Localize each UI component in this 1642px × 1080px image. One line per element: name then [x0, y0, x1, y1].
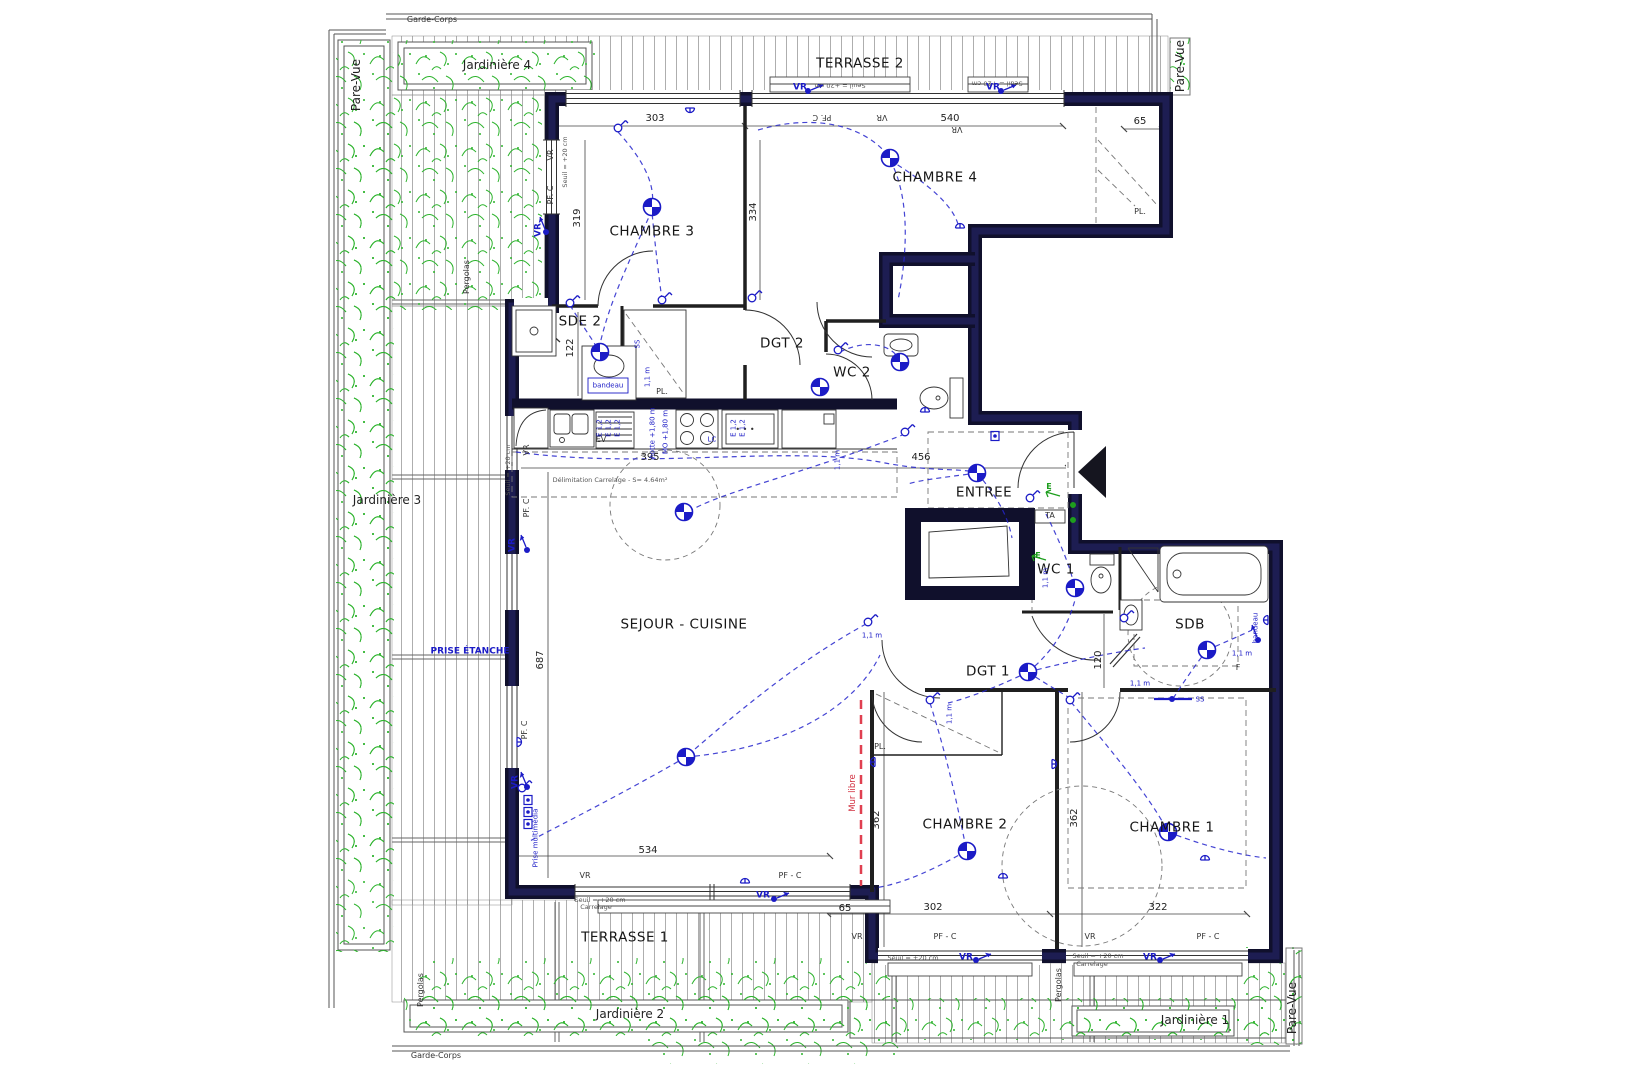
electrical-symbols	[517, 84, 1268, 963]
floor-plan-drawing	[0, 0, 1642, 1080]
roller-shutter-control-icon	[520, 84, 1261, 963]
dimension-lines	[509, 123, 1250, 947]
floor-plan-page: CHAMBRE 3CHAMBRE 4SDE 2DGT 2WC 2ENTREESE…	[0, 0, 1642, 1080]
fixtures	[512, 306, 1268, 886]
door-swings	[598, 251, 1140, 742]
windows	[504, 77, 1248, 976]
